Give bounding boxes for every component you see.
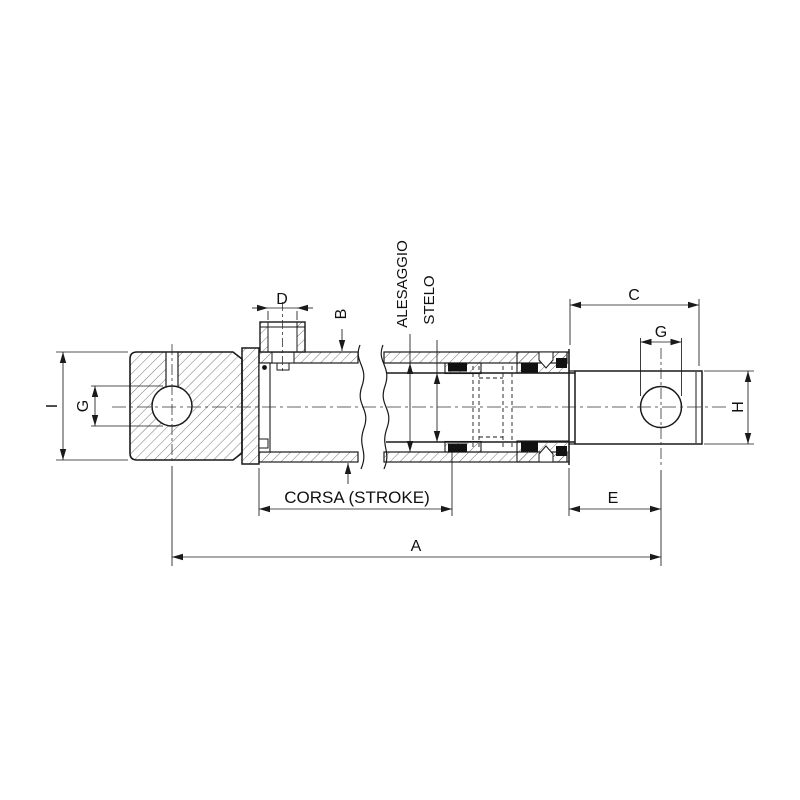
piston-seal-bottom xyxy=(448,444,467,453)
dim-i-label: I xyxy=(44,404,61,408)
stroke-label: CORSA (STROKE) xyxy=(284,488,429,507)
dim-e-label: E xyxy=(608,490,619,507)
cap-ring xyxy=(242,348,259,464)
wiper-seal-top xyxy=(556,358,567,368)
rod-seal-bottom xyxy=(521,442,538,452)
rod-label: STELO xyxy=(421,275,438,324)
dim-b-label: B xyxy=(333,309,350,320)
cylinder-technical-drawing: I G D B ALESAGGIO STELO C G H CORSA (STR… xyxy=(0,0,800,800)
rod-seal-top xyxy=(521,363,538,373)
cap-seal-dot xyxy=(262,365,267,370)
dim-d-label: D xyxy=(276,291,288,308)
dim-h-label: H xyxy=(730,401,747,413)
drawing-canvas: I G D B ALESAGGIO STELO C G H CORSA (STR… xyxy=(0,0,800,800)
piston-seal-top xyxy=(448,363,467,372)
dim-c-label: C xyxy=(628,287,640,304)
dim-a-label: A xyxy=(411,538,422,555)
rod-end-flat xyxy=(575,371,702,444)
wiper-seal-bottom xyxy=(556,446,567,456)
bore-label: ALESAGGIO xyxy=(394,240,411,328)
dim-g-left-label: G xyxy=(75,400,92,412)
tube-bottom-wall-left xyxy=(259,452,358,462)
cap-valve-square xyxy=(259,439,268,448)
dim-g-right-label: G xyxy=(655,324,667,341)
